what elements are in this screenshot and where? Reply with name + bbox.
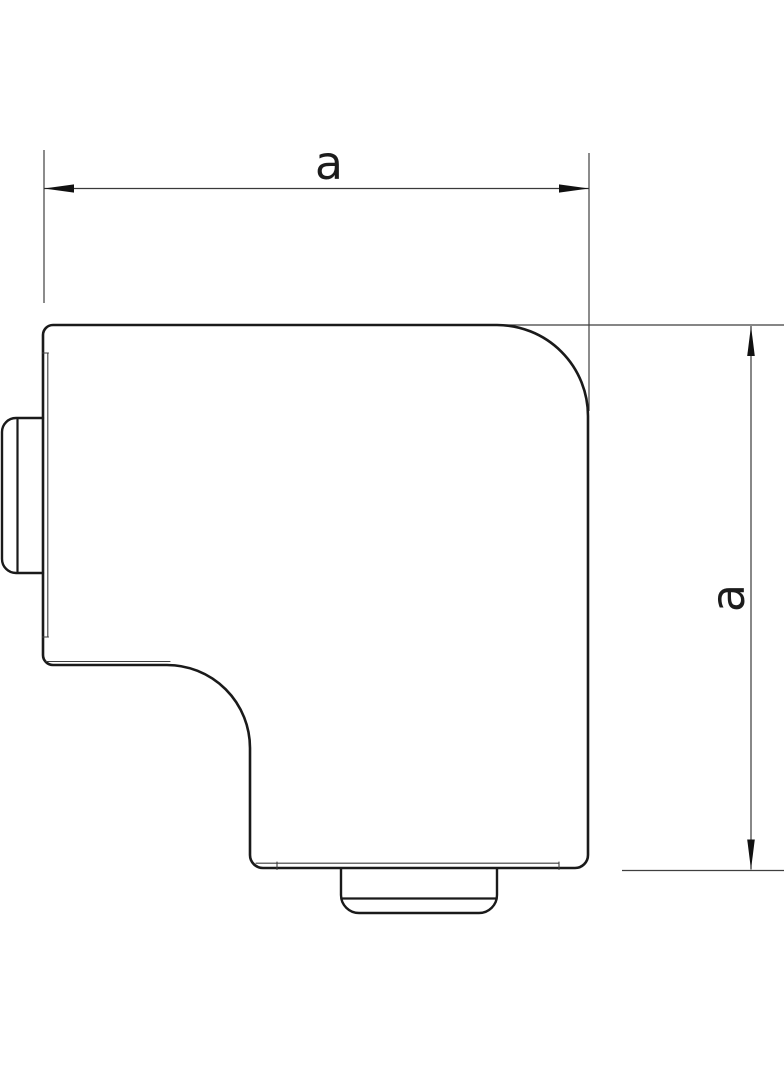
left-connector-stub [2, 418, 43, 573]
technical-drawing-page: a a [0, 0, 784, 1066]
body-outline [43, 325, 588, 868]
bottom-connector-stub [341, 869, 497, 913]
dimension-horizontal: a [44, 136, 589, 411]
arrowhead-up-icon [747, 326, 755, 356]
arrowhead-left-icon [44, 184, 74, 192]
arrowhead-right-icon [559, 184, 589, 192]
dimension-vertical: a [497, 325, 784, 871]
dimension-label-horizontal: a [315, 136, 343, 190]
flat-angle-body [2, 325, 588, 913]
arrowhead-down-icon [747, 840, 755, 870]
dimension-label-vertical: a [701, 584, 755, 612]
flat-angle-dimension-drawing: a a [0, 0, 784, 1066]
seam-lines [43, 353, 560, 870]
